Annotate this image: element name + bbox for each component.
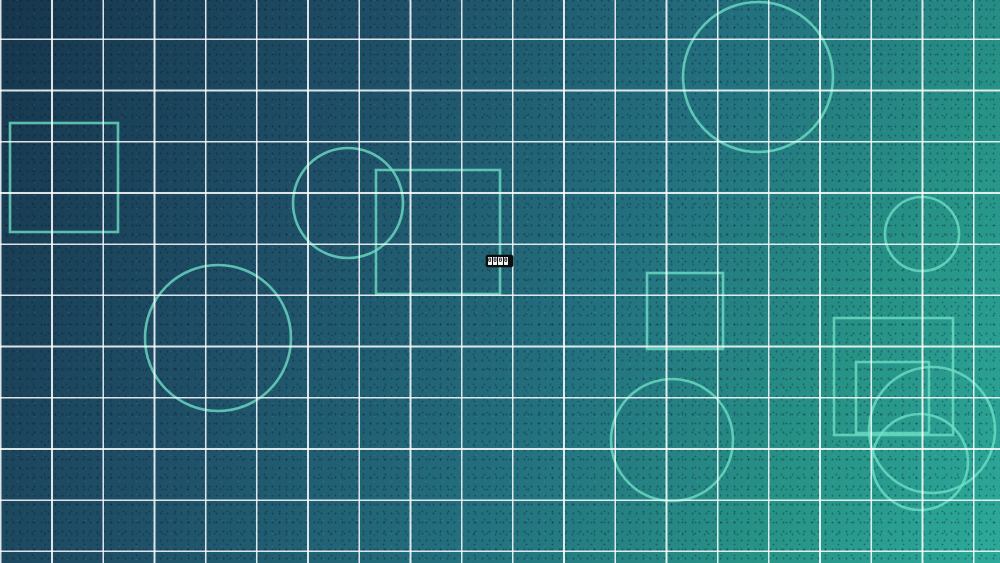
counter-digit: 0 [504, 257, 508, 265]
counter-digit: 0 [488, 257, 492, 265]
counter-digit: 0 [498, 257, 502, 265]
scene: 0000 [0, 0, 1000, 563]
counter-digit: 0 [493, 257, 497, 265]
digit-counter: 0000 [486, 255, 513, 267]
grid-overlay [0, 0, 1000, 563]
